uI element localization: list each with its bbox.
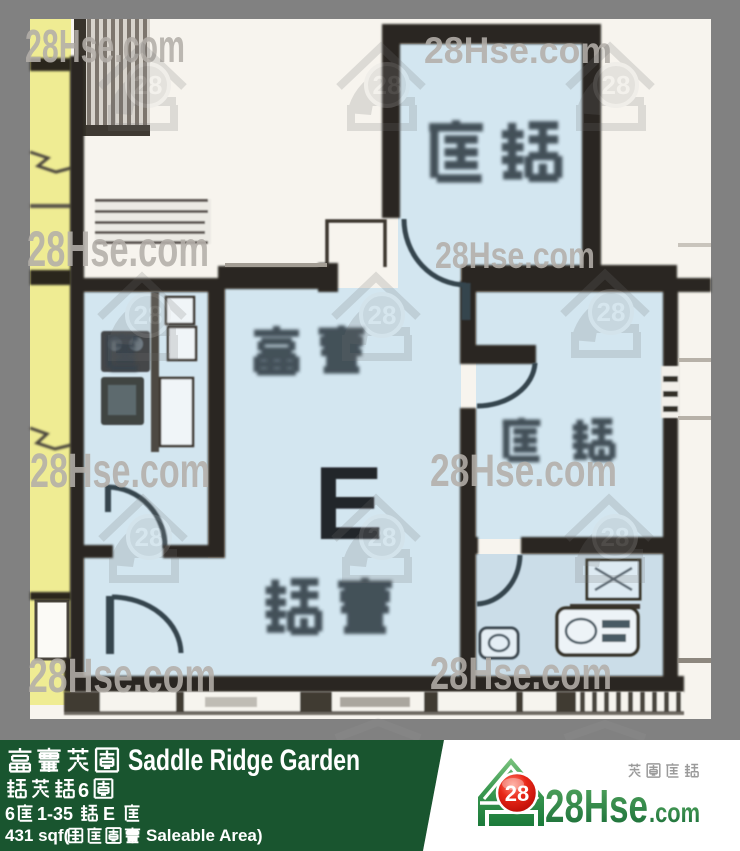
svg-text:28Hse.com: 28Hse.com: [424, 30, 612, 71]
svg-text:28Hse: 28Hse: [545, 780, 648, 832]
svg-text:E: E: [103, 804, 115, 824]
svg-text:28Hse.com: 28Hse.com: [28, 650, 216, 703]
svg-text:28Hse.com: 28Hse.com: [430, 648, 612, 699]
svg-text:28: 28: [134, 70, 163, 100]
svg-text:6: 6: [78, 780, 89, 802]
svg-text:431 sqf(: 431 sqf(: [5, 826, 70, 845]
svg-text:Saddle Ridge Garden: Saddle Ridge Garden: [128, 744, 360, 777]
svg-text:28: 28: [505, 781, 529, 806]
svg-text:28: 28: [368, 300, 397, 330]
svg-text:Saleable Area): Saleable Area): [146, 826, 263, 845]
svg-text:28: 28: [602, 70, 631, 100]
svg-text:28Hse.com: 28Hse.com: [430, 445, 617, 496]
svg-text:.com: .com: [649, 797, 700, 828]
svg-text:28: 28: [135, 522, 164, 552]
svg-text:28: 28: [601, 522, 630, 552]
svg-text:6: 6: [5, 804, 15, 824]
svg-text:28: 28: [368, 522, 397, 552]
svg-text:28: 28: [373, 70, 402, 100]
svg-text:28: 28: [134, 300, 163, 330]
svg-text:28Hse.com: 28Hse.com: [435, 235, 595, 276]
svg-text:28: 28: [597, 297, 626, 327]
svg-text:28Hse.com: 28Hse.com: [30, 445, 210, 498]
svg-text:28Hse.com: 28Hse.com: [27, 221, 209, 277]
svg-text:1-35: 1-35: [37, 804, 73, 824]
